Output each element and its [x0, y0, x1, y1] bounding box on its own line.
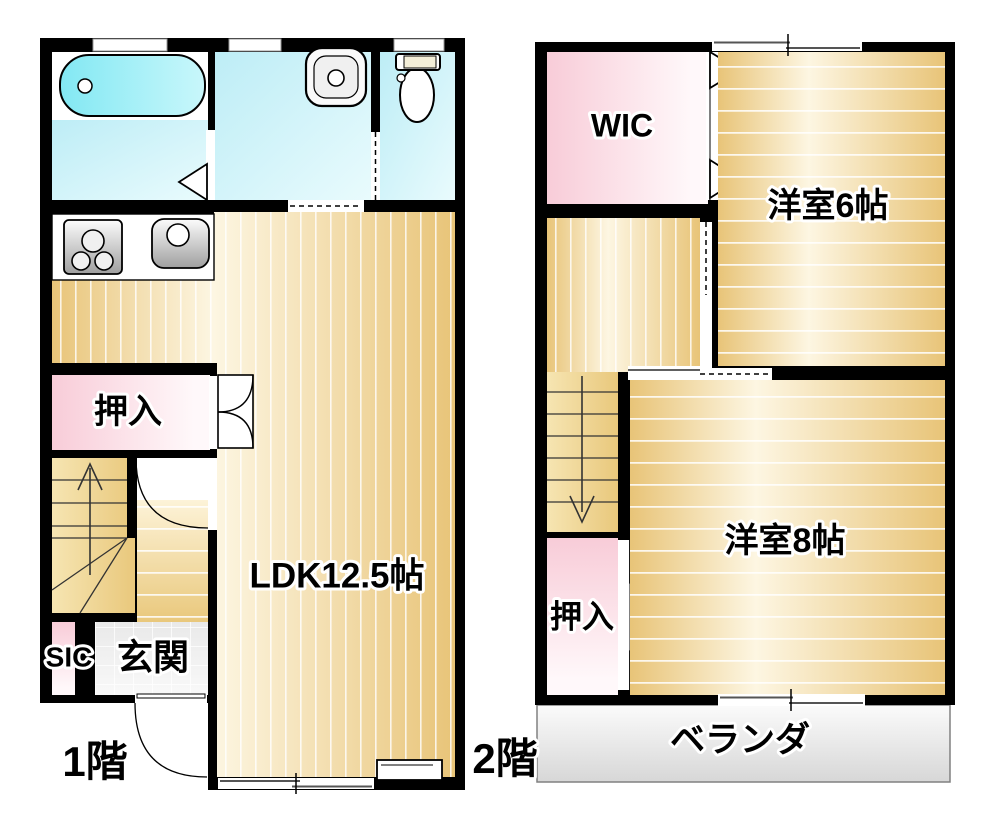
stairs-2f: [547, 372, 618, 532]
entrance-door-swing-icon: [135, 703, 207, 777]
oshiire-1f-door-opening: [209, 376, 218, 449]
washbasin-icon: [306, 48, 366, 106]
floor-plan: 押入 LDK12.5帖 SIC 玄関 1階: [0, 0, 996, 827]
bathroom-floor: [52, 120, 208, 200]
yoshitsu8-door-opening: [628, 366, 700, 380]
yoshitsu6-label: 洋室6帖: [768, 186, 889, 225]
hallway-1f-planks: [137, 500, 208, 622]
window-icon: [93, 39, 167, 51]
kitchen-sink-icon: [152, 219, 209, 268]
genkan-label: 玄関: [117, 637, 189, 678]
sic-label: SIC: [46, 641, 93, 672]
stairs-1f: [52, 458, 135, 613]
floor2-plan: WIC 洋室6帖 洋室8帖 押入 ベランダ 2階: [472, 34, 955, 782]
window-icon: [394, 39, 444, 51]
floor1-label: 1階: [62, 738, 127, 785]
stove-icon: [64, 220, 122, 274]
yoshitsu8-label: 洋室8帖: [725, 521, 846, 560]
oshiire-1f-label: 押入: [94, 393, 162, 431]
bathtub-drain-icon: [78, 79, 92, 93]
window-shutter-box-icon: [377, 760, 442, 780]
wic-label: WIC: [591, 107, 653, 143]
oshiire-2f-label: 押入: [550, 598, 614, 634]
floor2-label: 2階: [472, 735, 537, 782]
entrance-door-leaf: [137, 694, 205, 698]
oshiire-double-door-icon: [218, 375, 253, 448]
toilet-partition-wall: [371, 48, 380, 132]
floor-plan-canvas: 押入 LDK12.5帖 SIC 玄関 1階: [0, 0, 996, 827]
floor1-plan: 押入 LDK12.5帖 SIC 玄関 1階: [40, 38, 465, 794]
hall-2f-planks: [547, 218, 700, 372]
window-icon: [229, 39, 281, 51]
hall-door-opening: [208, 458, 217, 530]
veranda-label: ベランダ: [670, 720, 810, 759]
ldk-label: LDK12.5帖: [249, 556, 424, 595]
stairs-hall-wall: [127, 458, 137, 538]
yoshitsu6-door-opening: [700, 295, 712, 368]
